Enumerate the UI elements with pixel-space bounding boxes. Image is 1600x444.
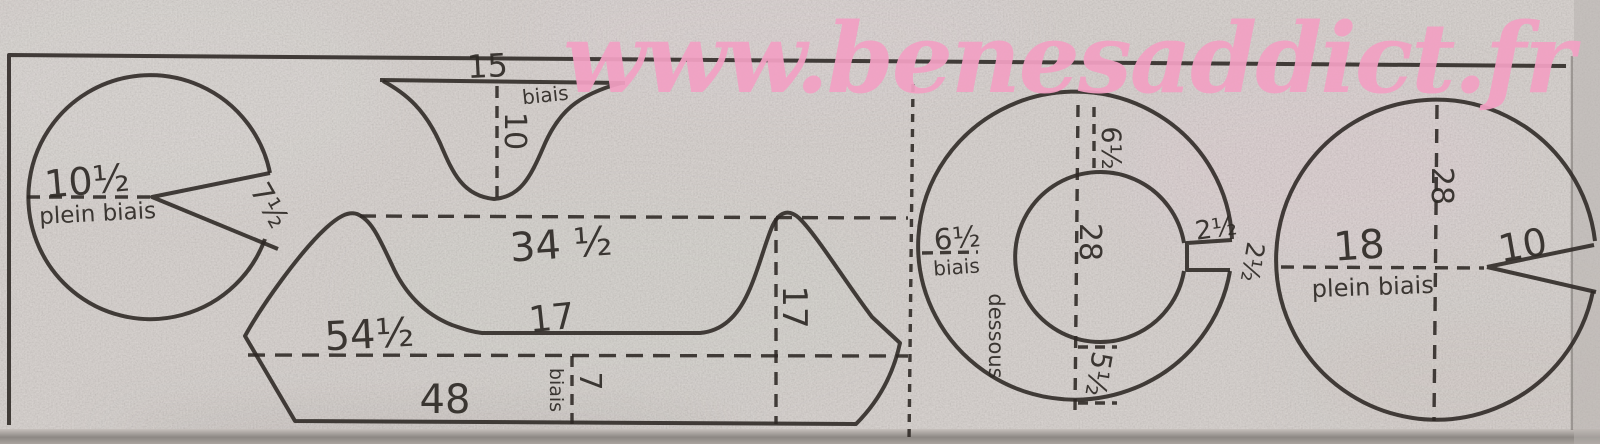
band-fold-width-dim-label: 54½ — [323, 310, 415, 361]
band-bottom-width-dim-label: 48 — [420, 377, 471, 423]
band-hem-depth-dim-label: 7 — [572, 371, 607, 390]
band-valley-dim-label: 17 — [527, 296, 577, 342]
disc-left-radius-dim-label: 18 — [1332, 221, 1386, 270]
right-edge-shading — [1574, 0, 1600, 444]
watermark-text: www.benesaddict.fr — [563, 2, 1581, 115]
scanned-pattern-sheet: 10½ plein biais 7½ 15 biais 10 34 ½ 17 5… — [0, 0, 1600, 444]
band-side-height-dim-label: 17 — [774, 285, 814, 328]
ring-top-band-dim-label: 6½ — [1095, 126, 1126, 169]
ring-left-band-dim-label: 6½ — [932, 219, 981, 257]
disc-right-radius-dim-label: 10 — [1495, 219, 1550, 271]
ring-notch-top-dim-label: 2½ — [1193, 211, 1239, 247]
disc-grain-label: plein biais — [1311, 271, 1434, 303]
funnel-depth-dim-label: 10 — [497, 112, 532, 150]
ring-underside-label: dessous — [984, 293, 1008, 378]
ring-left-grain-label: biais — [932, 253, 980, 280]
disc-vertical-dim-label: 28 — [1424, 167, 1459, 205]
bottom-page-shadow — [0, 429, 1600, 444]
ring-inner-diameter-dim-label: 28 — [1072, 223, 1107, 261]
band-hem-grain-label: biais — [545, 368, 567, 412]
band-upper-width-dim-label: 34 ½ — [508, 219, 613, 272]
funnel-width-dim-label: 15 — [466, 46, 509, 86]
